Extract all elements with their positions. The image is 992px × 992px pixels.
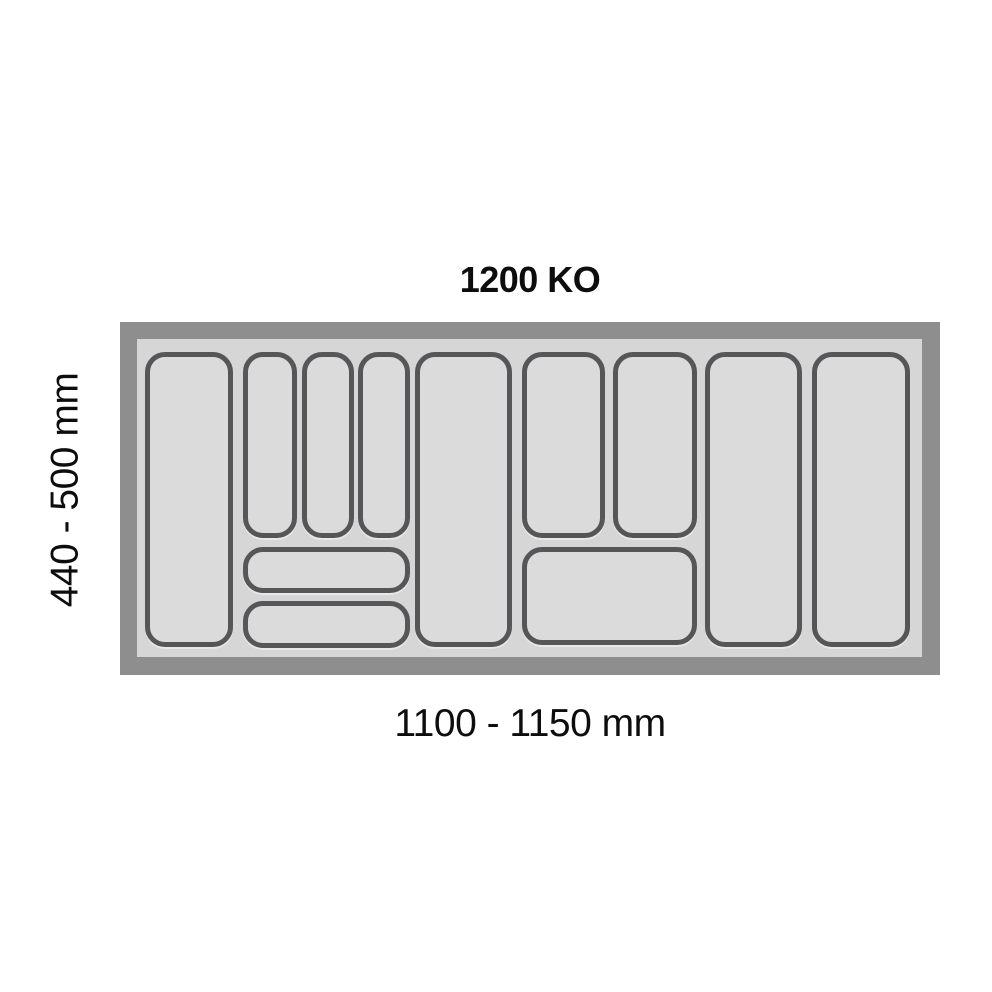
cutlery-tray: [120, 322, 940, 675]
compartment-wide-box: [522, 547, 697, 645]
compartment-tall-column-4: [812, 352, 910, 647]
width-dimension-label: 1100 - 1150 mm: [120, 704, 940, 743]
compartment-narrow-slot-2: [302, 352, 354, 538]
tray-interior: [137, 339, 922, 657]
product-title: 1200 KO: [120, 262, 940, 298]
compartment-narrow-slot-1: [243, 352, 297, 538]
compartment-tall-column-1: [145, 352, 233, 647]
compartment-left-strip-2: [243, 601, 410, 648]
compartment-left-strip-1: [243, 547, 410, 593]
height-dimension-label: 440 - 500 mm: [46, 373, 85, 608]
compartment-tall-column-2: [415, 352, 512, 647]
compartment-medium-slot-1: [522, 352, 605, 538]
compartment-narrow-slot-3: [358, 352, 410, 538]
compartment-medium-slot-2: [613, 352, 697, 538]
product-diagram: 1200 KO 440 - 500 mm 1100 - 1150 mm: [0, 0, 992, 992]
compartment-tall-column-3: [705, 352, 802, 647]
